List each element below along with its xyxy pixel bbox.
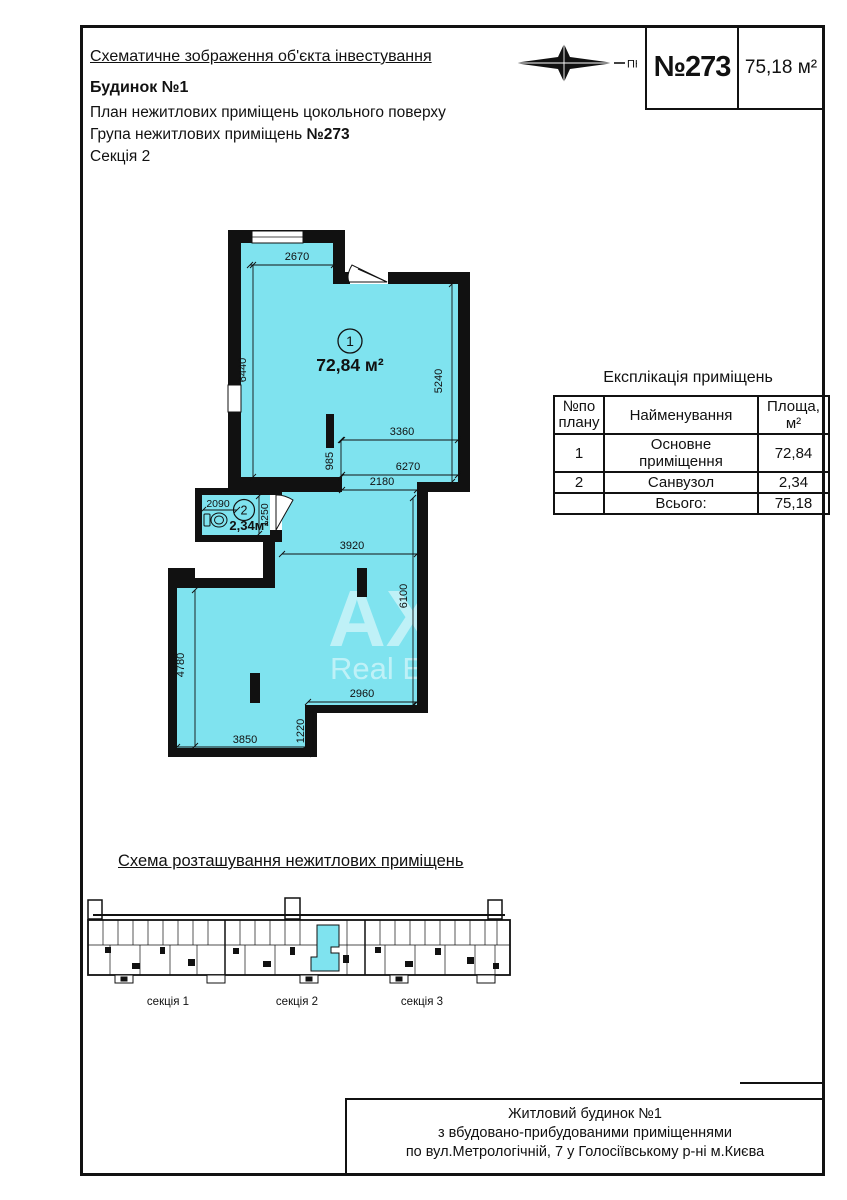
col-header-area: Площа, м² bbox=[758, 396, 829, 434]
cell-name: Санвузол bbox=[604, 472, 758, 493]
col-header-name: Найменування bbox=[604, 396, 758, 434]
scheme-outline bbox=[88, 898, 510, 975]
document-page: Схематичне зображення об'єкта інвестуван… bbox=[0, 0, 847, 1200]
dim-label: 2670 bbox=[285, 251, 309, 263]
cell-plan-number: 2 bbox=[554, 472, 604, 493]
dim-label: 6100 bbox=[398, 584, 410, 608]
wall-recess bbox=[228, 385, 241, 412]
scheme-stair-exits bbox=[115, 975, 495, 983]
dim-label: 4780 bbox=[175, 653, 187, 677]
table-total-row: Всього: 75,18 bbox=[554, 493, 829, 514]
title-block-divider bbox=[740, 1082, 824, 1084]
unit-number: №273 bbox=[647, 27, 739, 108]
cell-area: 72,84 bbox=[758, 434, 829, 472]
group-subtitle-text: Група нежитлових приміщень bbox=[90, 126, 307, 143]
footer-address: по вул.Метрологічній, 7 у Голосіївському… bbox=[406, 1144, 764, 1160]
cell-empty bbox=[554, 493, 604, 514]
section-subtitle: Секція 2 bbox=[90, 148, 150, 166]
section-label: секція 2 bbox=[276, 996, 318, 1008]
room2-number: 2 bbox=[241, 504, 248, 518]
compass-north-icon: ПН bbox=[512, 42, 637, 84]
section-label: секція 3 bbox=[401, 996, 443, 1008]
room1-number: 1 bbox=[346, 333, 354, 349]
total-value: 75,18 bbox=[758, 493, 829, 514]
dim-label: 3850 bbox=[233, 734, 257, 746]
floor-plan: АХ Real Es bbox=[165, 218, 485, 773]
building-scheme: секція 1 секція 2 секція 3 bbox=[85, 893, 515, 1015]
dim-label: 3360 bbox=[390, 426, 414, 438]
dim-label: 1220 bbox=[295, 719, 307, 743]
unit-area: 75,18 м² bbox=[739, 27, 823, 108]
title-block: Житловий будинок №1 з вбудовано-прибудов… bbox=[345, 1098, 825, 1175]
footer-description: з вбудовано-прибудованими приміщеннями bbox=[438, 1125, 732, 1141]
building-title: Будинок №1 bbox=[90, 79, 188, 97]
explication-table: №по плану Найменування Площа, м² 1 Основ… bbox=[553, 395, 830, 515]
room2-area: 2,34м² bbox=[229, 518, 269, 533]
dim-label: 3920 bbox=[340, 540, 364, 552]
total-label: Всього: bbox=[604, 493, 758, 514]
page-title: Схематичне зображення об'єкта інвестуван… bbox=[90, 48, 432, 66]
dim-label: 6440 bbox=[237, 358, 249, 382]
explication-title: Експлікація приміщень bbox=[553, 369, 823, 387]
dim-label: 2090 bbox=[206, 498, 230, 510]
cell-area: 2,34 bbox=[758, 472, 829, 493]
table-header-row: №по плану Найменування Площа, м² bbox=[554, 396, 829, 434]
dim-label: 985 bbox=[324, 452, 336, 470]
cell-plan-number: 1 bbox=[554, 434, 604, 472]
cell-name: Основне приміщення bbox=[604, 434, 758, 472]
room1-area: 72,84 м² bbox=[316, 355, 384, 375]
footer-building-name: Житловий будинок №1 bbox=[508, 1106, 662, 1122]
group-subtitle: Група нежитлових приміщень №273 bbox=[90, 126, 350, 144]
group-number: №273 bbox=[307, 126, 350, 143]
section-label: секція 1 bbox=[147, 996, 189, 1008]
col-header-plan-number: №по плану bbox=[554, 396, 604, 434]
plan-subtitle: План нежитлових приміщень цокольного пов… bbox=[90, 104, 446, 122]
table-row: 1 Основне приміщення 72,84 bbox=[554, 434, 829, 472]
compass-label: ПН bbox=[627, 59, 637, 71]
dim-label: 2180 bbox=[370, 476, 394, 488]
table-row: 2 Санвузол 2,34 bbox=[554, 472, 829, 493]
scheme-title: Схема розташування нежитлових приміщень bbox=[118, 852, 464, 871]
dim-label: 5240 bbox=[433, 369, 445, 393]
unit-stamp-box: №273 75,18 м² bbox=[645, 25, 825, 110]
dim-label: 2960 bbox=[350, 688, 374, 700]
dim-label: 6270 bbox=[396, 461, 420, 473]
